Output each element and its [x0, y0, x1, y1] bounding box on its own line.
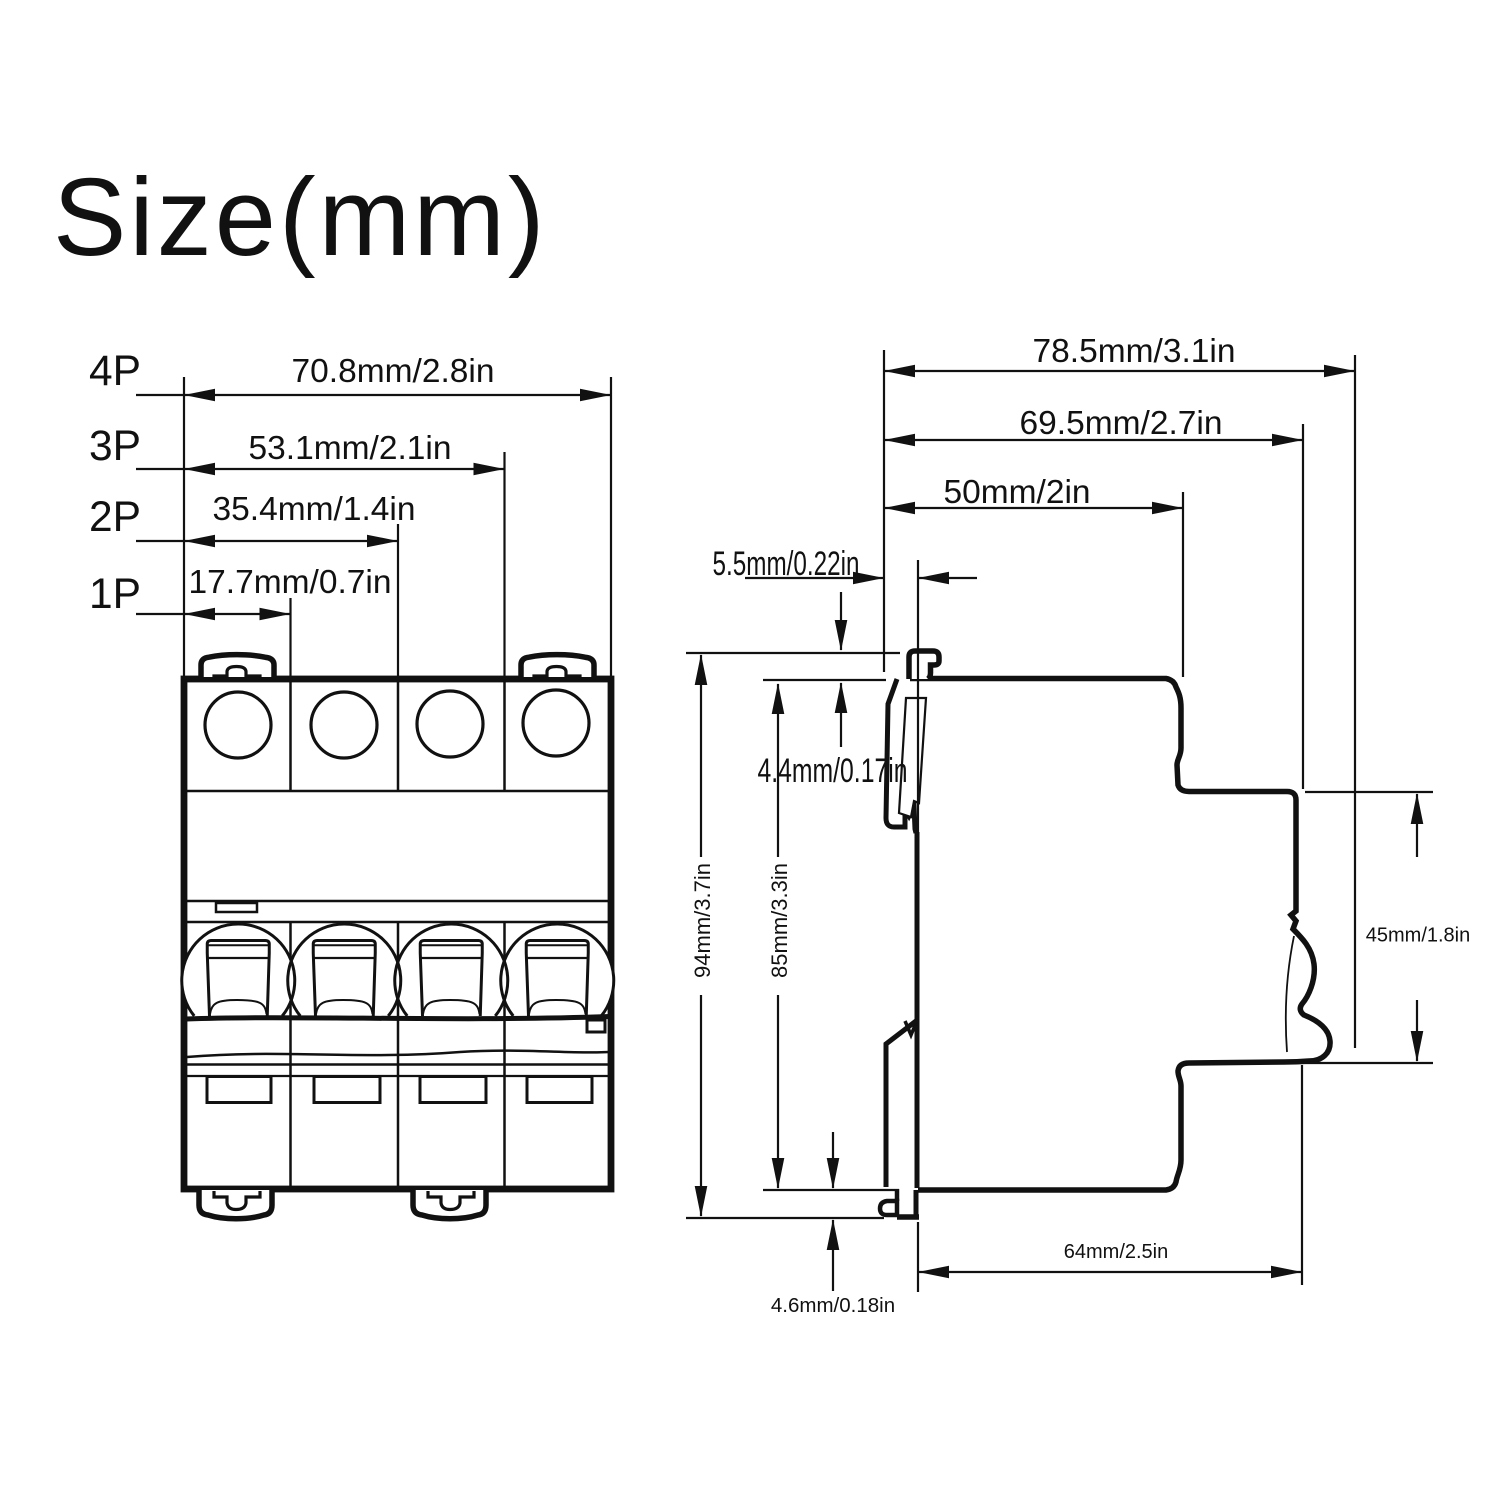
svg-text:17.7mm/0.7in: 17.7mm/0.7in — [189, 564, 392, 601]
svg-text:5.5mm/0.22in: 5.5mm/0.22in — [713, 545, 860, 583]
svg-text:35.4mm/1.4in: 35.4mm/1.4in — [213, 491, 416, 528]
svg-text:4.4mm/0.17in: 4.4mm/0.17in — [758, 752, 908, 790]
svg-text:45mm/1.8in: 45mm/1.8in — [1366, 925, 1471, 947]
svg-text:50mm/2in: 50mm/2in — [943, 474, 1090, 511]
svg-text:1P: 1P — [89, 571, 141, 618]
svg-text:85mm/3.3in: 85mm/3.3in — [767, 863, 792, 978]
svg-text:78.5mm/3.1in: 78.5mm/3.1in — [1033, 333, 1236, 370]
svg-text:53.1mm/2.1in: 53.1mm/2.1in — [249, 430, 452, 467]
svg-text:3P: 3P — [89, 423, 141, 470]
svg-text:4P: 4P — [89, 348, 141, 395]
svg-text:64mm/2.5in: 64mm/2.5in — [1064, 1241, 1169, 1263]
svg-text:4.6mm/0.18in: 4.6mm/0.18in — [771, 1294, 895, 1317]
svg-text:69.5mm/2.7in: 69.5mm/2.7in — [1020, 405, 1223, 442]
svg-text:70.8mm/2.8in: 70.8mm/2.8in — [292, 353, 495, 390]
svg-text:94mm/3.7in: 94mm/3.7in — [690, 863, 715, 978]
svg-text:Size(mm): Size(mm) — [53, 156, 548, 279]
svg-text:2P: 2P — [89, 494, 141, 541]
